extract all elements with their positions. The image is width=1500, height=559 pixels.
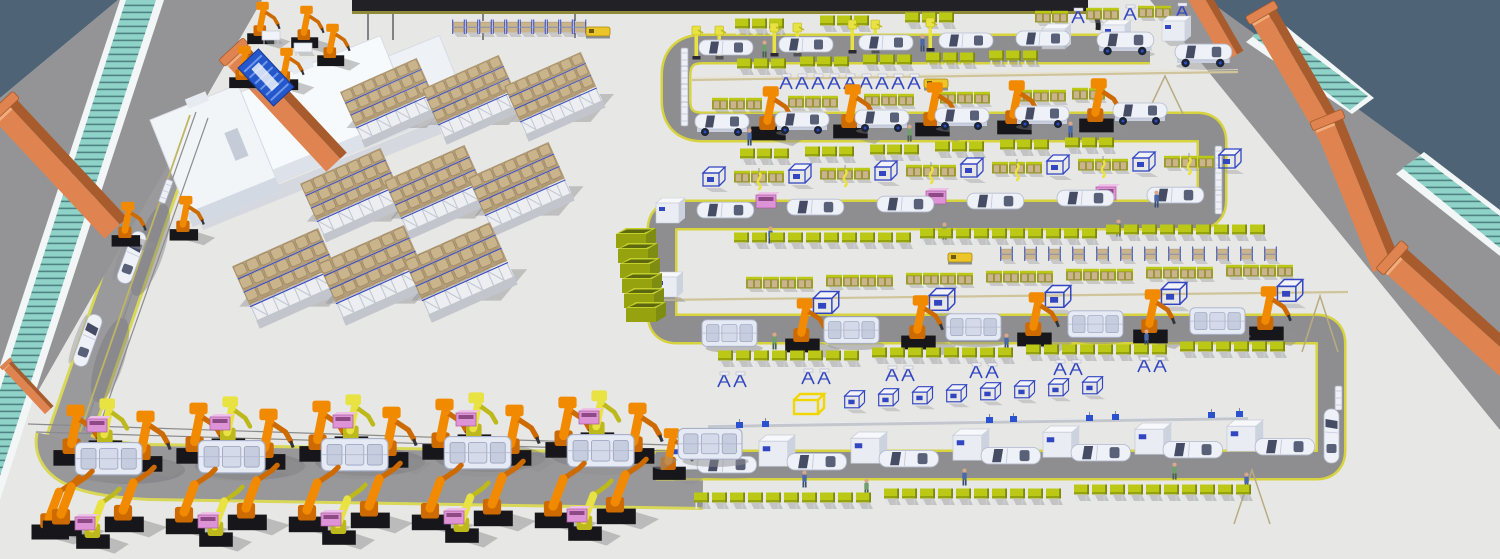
workbench-green[interactable] bbox=[1000, 140, 1017, 157]
workbench-green[interactable] bbox=[860, 233, 877, 250]
workbench-green[interactable] bbox=[1065, 138, 1082, 155]
workbench-green[interactable] bbox=[817, 57, 834, 74]
workbench-green[interactable] bbox=[1028, 229, 1045, 246]
pallet-skid[interactable] bbox=[1335, 386, 1342, 410]
car-body[interactable] bbox=[699, 40, 754, 61]
factory-simulation-viewport[interactable] bbox=[0, 0, 1500, 559]
workbench-green[interactable] bbox=[1046, 229, 1063, 246]
pallet-skid[interactable] bbox=[681, 102, 688, 126]
workbench-green[interactable] bbox=[926, 348, 943, 365]
workbench-green[interactable] bbox=[1234, 342, 1251, 359]
car-body[interactable] bbox=[1319, 409, 1340, 464]
workbench-green[interactable] bbox=[938, 229, 955, 246]
workbench-green[interactable] bbox=[908, 348, 925, 365]
workbench-green[interactable] bbox=[1010, 489, 1027, 506]
workbench-green[interactable] bbox=[935, 142, 952, 159]
car-body[interactable] bbox=[787, 199, 845, 221]
assembled-car[interactable] bbox=[855, 110, 910, 135]
workbench-green[interactable] bbox=[826, 351, 843, 368]
workbench-green[interactable] bbox=[902, 489, 919, 506]
workbench-green[interactable] bbox=[1110, 485, 1127, 502]
workbench-green[interactable] bbox=[770, 233, 787, 250]
workbench-green[interactable] bbox=[694, 493, 711, 510]
car-body[interactable] bbox=[1057, 190, 1115, 212]
car-body[interactable] bbox=[1255, 438, 1316, 461]
workbench-green[interactable] bbox=[992, 229, 1009, 246]
workbench-green[interactable] bbox=[962, 348, 979, 365]
workbench-green[interactable] bbox=[1214, 225, 1231, 242]
parts-bin-green[interactable] bbox=[626, 302, 666, 322]
workbench-green[interactable] bbox=[1164, 485, 1181, 502]
workbench-green[interactable] bbox=[1034, 140, 1051, 157]
workbench-green[interactable] bbox=[989, 51, 1006, 68]
workbench-green[interactable] bbox=[820, 16, 837, 33]
workbench-green[interactable] bbox=[1124, 225, 1141, 242]
workbench-green[interactable] bbox=[974, 229, 991, 246]
workbench-green[interactable] bbox=[1178, 225, 1195, 242]
workbench-green[interactable] bbox=[736, 351, 753, 368]
workbench-green[interactable] bbox=[896, 233, 913, 250]
workbench-green[interactable] bbox=[887, 145, 904, 162]
workbench-green[interactable] bbox=[1062, 345, 1079, 362]
workbench-green[interactable] bbox=[737, 59, 754, 76]
workbench-green[interactable] bbox=[842, 233, 859, 250]
workbench-green[interactable] bbox=[1106, 225, 1123, 242]
workbench-green[interactable] bbox=[740, 149, 757, 166]
workbench-green[interactable] bbox=[774, 149, 791, 166]
assembled-car[interactable] bbox=[1015, 106, 1070, 131]
workbench-green[interactable] bbox=[863, 55, 880, 72]
body-in-white-fixture[interactable] bbox=[1068, 311, 1129, 344]
workbench-green[interactable] bbox=[969, 142, 986, 159]
car-body[interactable] bbox=[697, 202, 755, 224]
workbench-green[interactable] bbox=[712, 493, 729, 510]
workbench-green[interactable] bbox=[1006, 51, 1023, 68]
workbench-green[interactable] bbox=[1128, 485, 1145, 502]
workbench-green[interactable] bbox=[1216, 342, 1233, 359]
workbench-green[interactable] bbox=[878, 233, 895, 250]
workbench-green[interactable] bbox=[1116, 345, 1133, 362]
car-body[interactable] bbox=[859, 35, 914, 56]
workbench-green[interactable] bbox=[1099, 138, 1116, 155]
workbench-green[interactable] bbox=[1218, 485, 1235, 502]
workbench-green[interactable] bbox=[1142, 225, 1159, 242]
car-body[interactable] bbox=[1071, 444, 1132, 467]
workbench-green[interactable] bbox=[890, 348, 907, 365]
workbench-green[interactable] bbox=[956, 229, 973, 246]
workbench-green[interactable] bbox=[920, 489, 937, 506]
car-body[interactable] bbox=[1163, 441, 1224, 464]
workbench-green[interactable] bbox=[800, 57, 817, 74]
workbench-green[interactable] bbox=[1200, 485, 1217, 502]
workbench-green[interactable] bbox=[754, 351, 771, 368]
workbench-green[interactable] bbox=[734, 233, 751, 250]
workbench-green[interactable] bbox=[992, 489, 1009, 506]
workbench-green[interactable] bbox=[834, 57, 851, 74]
workbench-green[interactable] bbox=[956, 489, 973, 506]
workbench-green[interactable] bbox=[822, 147, 839, 164]
workbench-green[interactable] bbox=[771, 59, 788, 76]
workbench-green[interactable] bbox=[1026, 345, 1043, 362]
car-body[interactable] bbox=[787, 453, 848, 476]
body-in-white-fixture[interactable] bbox=[702, 320, 763, 353]
workbench-green[interactable] bbox=[944, 348, 961, 365]
workbench-green[interactable] bbox=[718, 351, 735, 368]
workbench-green[interactable] bbox=[1232, 225, 1249, 242]
workbench-green[interactable] bbox=[1028, 489, 1045, 506]
workbench-green[interactable] bbox=[952, 142, 969, 159]
car-body[interactable] bbox=[967, 193, 1025, 215]
car-body[interactable] bbox=[779, 37, 834, 58]
workbench-green[interactable] bbox=[766, 493, 783, 510]
workbench-green[interactable] bbox=[1082, 229, 1099, 246]
workbench-green[interactable] bbox=[1160, 225, 1177, 242]
workbench-green[interactable] bbox=[1250, 225, 1267, 242]
body-in-white-fixture[interactable] bbox=[946, 314, 1007, 347]
workbench-green[interactable] bbox=[802, 493, 819, 510]
workbench-green[interactable] bbox=[943, 53, 960, 70]
workbench-green[interactable] bbox=[757, 149, 774, 166]
workbench-green[interactable] bbox=[808, 351, 825, 368]
workbench-green[interactable] bbox=[788, 233, 805, 250]
workbench-green[interactable] bbox=[1198, 342, 1215, 359]
workbench-green[interactable] bbox=[1023, 51, 1040, 68]
workbench-green[interactable] bbox=[790, 351, 807, 368]
car-body[interactable] bbox=[939, 33, 994, 54]
workbench-green[interactable] bbox=[938, 489, 955, 506]
workbench-green[interactable] bbox=[1017, 140, 1034, 157]
workbench-green[interactable] bbox=[805, 147, 822, 164]
body-in-white-fixture[interactable] bbox=[678, 428, 748, 467]
workbench-green[interactable] bbox=[839, 147, 856, 164]
pallet-skid[interactable] bbox=[1215, 168, 1222, 192]
workbench-green[interactable] bbox=[960, 53, 977, 70]
body-in-white-fixture[interactable] bbox=[824, 317, 885, 350]
workbench-green[interactable] bbox=[872, 348, 889, 365]
car-body[interactable] bbox=[877, 196, 935, 218]
workbench-green[interactable] bbox=[856, 493, 873, 510]
workbench-green[interactable] bbox=[824, 233, 841, 250]
workbench-green[interactable] bbox=[1236, 485, 1253, 502]
agv-cart[interactable] bbox=[586, 27, 610, 39]
car-body[interactable] bbox=[981, 447, 1042, 470]
workbench-green[interactable] bbox=[1044, 345, 1061, 362]
workbench-green[interactable] bbox=[772, 351, 789, 368]
assembled-car[interactable] bbox=[775, 112, 830, 137]
assembled-car[interactable] bbox=[1175, 44, 1233, 70]
workbench-green[interactable] bbox=[1180, 342, 1197, 359]
workbench-green[interactable] bbox=[998, 348, 1015, 365]
agv-cart[interactable] bbox=[948, 253, 972, 265]
workbench-green[interactable] bbox=[752, 233, 769, 250]
car-body[interactable] bbox=[1016, 31, 1071, 52]
pallet-skid[interactable] bbox=[1215, 190, 1222, 214]
workbench-green[interactable] bbox=[784, 493, 801, 510]
workbench-green[interactable] bbox=[939, 13, 956, 30]
workbench-green[interactable] bbox=[1252, 342, 1269, 359]
workbench-green[interactable] bbox=[1098, 345, 1115, 362]
workbench-green[interactable] bbox=[974, 489, 991, 506]
workbench-green[interactable] bbox=[1064, 229, 1081, 246]
workbench-green[interactable] bbox=[1046, 489, 1063, 506]
workbench-green[interactable] bbox=[838, 493, 855, 510]
assembled-car[interactable] bbox=[695, 114, 750, 139]
workbench-green[interactable] bbox=[870, 145, 887, 162]
assembled-car[interactable] bbox=[935, 108, 990, 133]
workbench-green[interactable] bbox=[752, 19, 769, 36]
workbench-green[interactable] bbox=[1010, 229, 1027, 246]
body-in-white-fixture[interactable] bbox=[1190, 308, 1251, 341]
workbench-green[interactable] bbox=[1074, 485, 1091, 502]
assembled-car[interactable] bbox=[1097, 32, 1155, 58]
workbench-green[interactable] bbox=[1092, 485, 1109, 502]
workbench-green[interactable] bbox=[806, 233, 823, 250]
workbench-green[interactable] bbox=[820, 493, 837, 510]
workbench-green[interactable] bbox=[1196, 225, 1213, 242]
workbench-green[interactable] bbox=[1146, 485, 1163, 502]
workbench-green[interactable] bbox=[920, 229, 937, 246]
workbench-green[interactable] bbox=[884, 489, 901, 506]
workbench-green[interactable] bbox=[748, 493, 765, 510]
workbench-green[interactable] bbox=[926, 53, 943, 70]
workbench-green[interactable] bbox=[754, 59, 771, 76]
workbench-green[interactable] bbox=[897, 55, 914, 72]
workbench-green[interactable] bbox=[980, 348, 997, 365]
workbench-green[interactable] bbox=[1182, 485, 1199, 502]
workbench-green[interactable] bbox=[1080, 345, 1097, 362]
workbench-green[interactable] bbox=[735, 19, 752, 36]
workbench-green[interactable] bbox=[730, 493, 747, 510]
assembled-car[interactable] bbox=[1113, 103, 1168, 128]
workbench-green[interactable] bbox=[904, 145, 921, 162]
car-body[interactable] bbox=[879, 450, 940, 473]
workbench-green[interactable] bbox=[905, 13, 922, 30]
workbench-green[interactable] bbox=[1270, 342, 1287, 359]
workbench-green[interactable] bbox=[880, 55, 897, 72]
workbench-green[interactable] bbox=[1082, 138, 1099, 155]
workbench-green[interactable] bbox=[844, 351, 861, 368]
